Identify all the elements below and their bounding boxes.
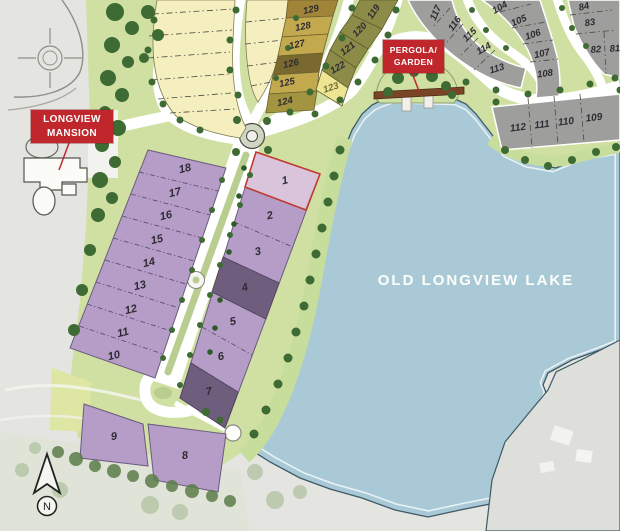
dock [424, 95, 433, 108]
lot-number: 112 [509, 122, 527, 135]
dock [402, 96, 411, 111]
estate-drive-curve [14, 0, 83, 97]
map-canvas: OLD LONGVIEW LAKE [0, 0, 620, 531]
lot-number: 82 [590, 44, 602, 56]
lot-number: 111 [534, 119, 551, 132]
far-building [575, 449, 593, 463]
lot-number: 108 [536, 68, 554, 81]
mansion-label-line1: LONGVIEW [43, 113, 101, 127]
lot-number: 110 [557, 116, 575, 129]
estate-roundabout-icon [38, 46, 62, 70]
mansion-footprint [24, 158, 87, 190]
lot-number: 81 [609, 43, 620, 55]
lookout-circle [225, 425, 241, 441]
site-plan-map: OLD LONGVIEW LAKE [0, 0, 620, 531]
compass-n-label: N [43, 501, 51, 513]
mansion-label: LONGVIEW MANSION [31, 110, 113, 143]
mansion-label-line2: MANSION [47, 127, 97, 141]
pergola-garden-label: PERGOLA/ GARDEN [383, 40, 444, 73]
lake-name-label: OLD LONGVIEW LAKE [378, 272, 575, 289]
mansion-lawn-oval [33, 187, 55, 215]
lot-number: 109 [585, 112, 603, 125]
pergola-label-line2: GARDEN [394, 57, 433, 68]
pergola-label-line1: PERGOLA/ [390, 45, 438, 56]
